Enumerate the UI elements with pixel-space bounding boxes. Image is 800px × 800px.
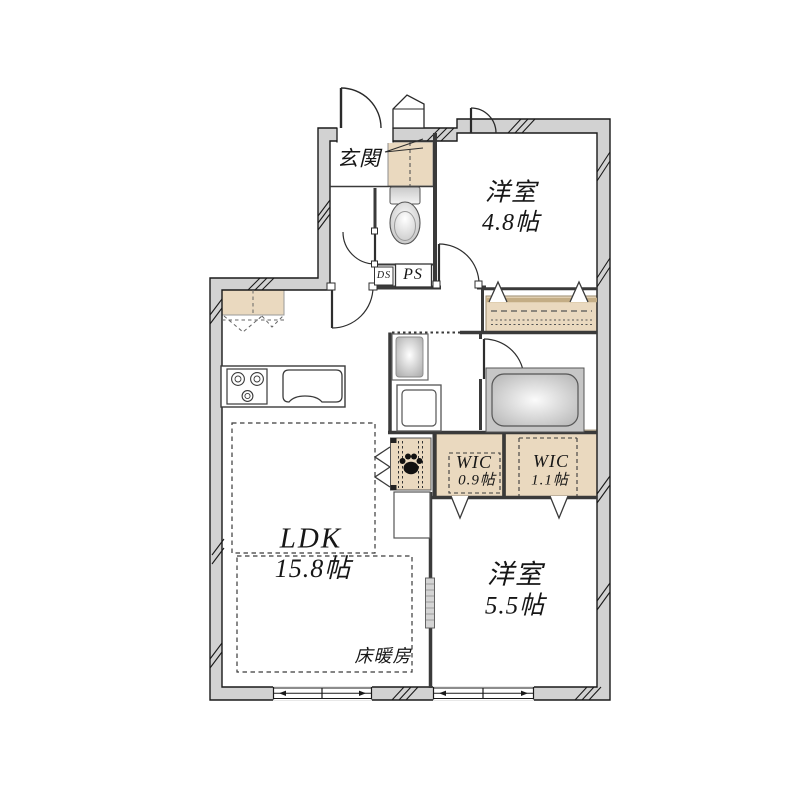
wic1-size: 0.9帖 xyxy=(458,474,496,489)
wic2-name: WIC xyxy=(533,452,569,470)
duct-shaft-label: DS xyxy=(377,271,391,281)
bedroom1-name: 洋室 xyxy=(485,181,537,206)
wic1-name: WIC xyxy=(456,453,492,471)
genkan-label: 玄関 xyxy=(337,149,381,170)
wic2-size: 1.1帖 xyxy=(531,474,569,489)
kitchen-sink xyxy=(283,370,342,402)
toilet xyxy=(390,187,420,244)
bedroom2-name: 洋室 xyxy=(487,562,543,589)
bathtub xyxy=(486,368,584,432)
window-ldk xyxy=(273,686,372,701)
entrance-door-swing xyxy=(341,88,381,128)
sliding-door xyxy=(426,578,435,628)
floorplan-drawing xyxy=(0,0,800,800)
entrance-door-opening xyxy=(337,127,393,144)
meter-box xyxy=(393,95,424,128)
washing-machine-pan xyxy=(397,385,441,431)
bedroom1-size: 4.8帖 xyxy=(482,211,540,235)
ldk-size: 15.8帖 xyxy=(275,556,352,582)
bedroom2-size: 5.5帖 xyxy=(485,594,545,619)
vanity-sink xyxy=(392,334,428,380)
floorplan-canvas: 玄関 洋室 4.8帖 洋室 5.5帖 LDK 15.8帖 WIC 0.9帖 WI… xyxy=(0,0,800,800)
window-bedroom2 xyxy=(433,686,534,701)
floor-heating-label: 床暖房 xyxy=(355,647,412,665)
pipe-shaft-label: PS xyxy=(403,267,423,283)
ldk-name: LDK xyxy=(280,525,342,554)
counter-nook xyxy=(394,492,430,538)
kitchen-stove xyxy=(227,369,267,404)
